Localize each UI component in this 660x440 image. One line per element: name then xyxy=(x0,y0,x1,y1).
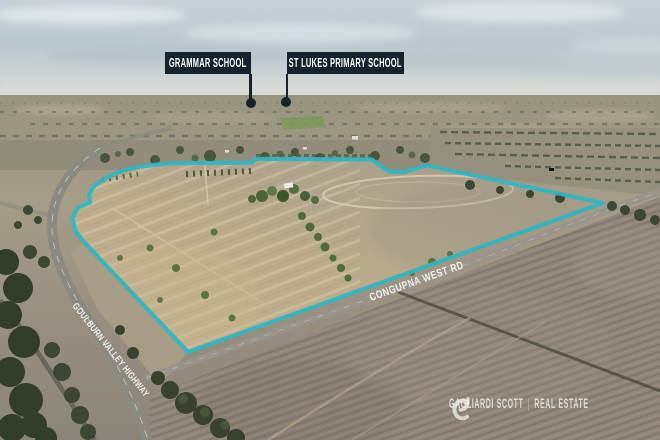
sky xyxy=(0,0,660,100)
watermark-text: GAGLIARDI SCOTT | REAL ESTATE xyxy=(449,396,589,411)
callout-st-lukes: ST LUKES PRIMARY SCHOOL xyxy=(287,52,404,74)
watermark-divider: | xyxy=(528,396,530,411)
aerial-photo: GOULBURN VALLEY HIGHWAY CONGUPNA WEST RD… xyxy=(0,0,660,440)
callout-leader-line-grammar xyxy=(249,74,252,100)
callout-grammar-school: GRAMMAR SCHOOL xyxy=(165,52,251,74)
callout-dot-st-lukes xyxy=(281,97,291,107)
watermark: GAGLIARDI SCOTT | REAL ESTATE xyxy=(449,396,660,411)
watermark-division: REAL ESTATE xyxy=(534,396,588,411)
callout-dot-grammar xyxy=(246,98,256,108)
callout-grammar-school-label: GRAMMAR SCHOOL xyxy=(169,56,247,70)
watermark-brand: GAGLIARDI SCOTT xyxy=(449,396,523,411)
distant-shed xyxy=(352,136,358,140)
callout-st-lukes-label: ST LUKES PRIMARY SCHOOL xyxy=(289,56,402,70)
